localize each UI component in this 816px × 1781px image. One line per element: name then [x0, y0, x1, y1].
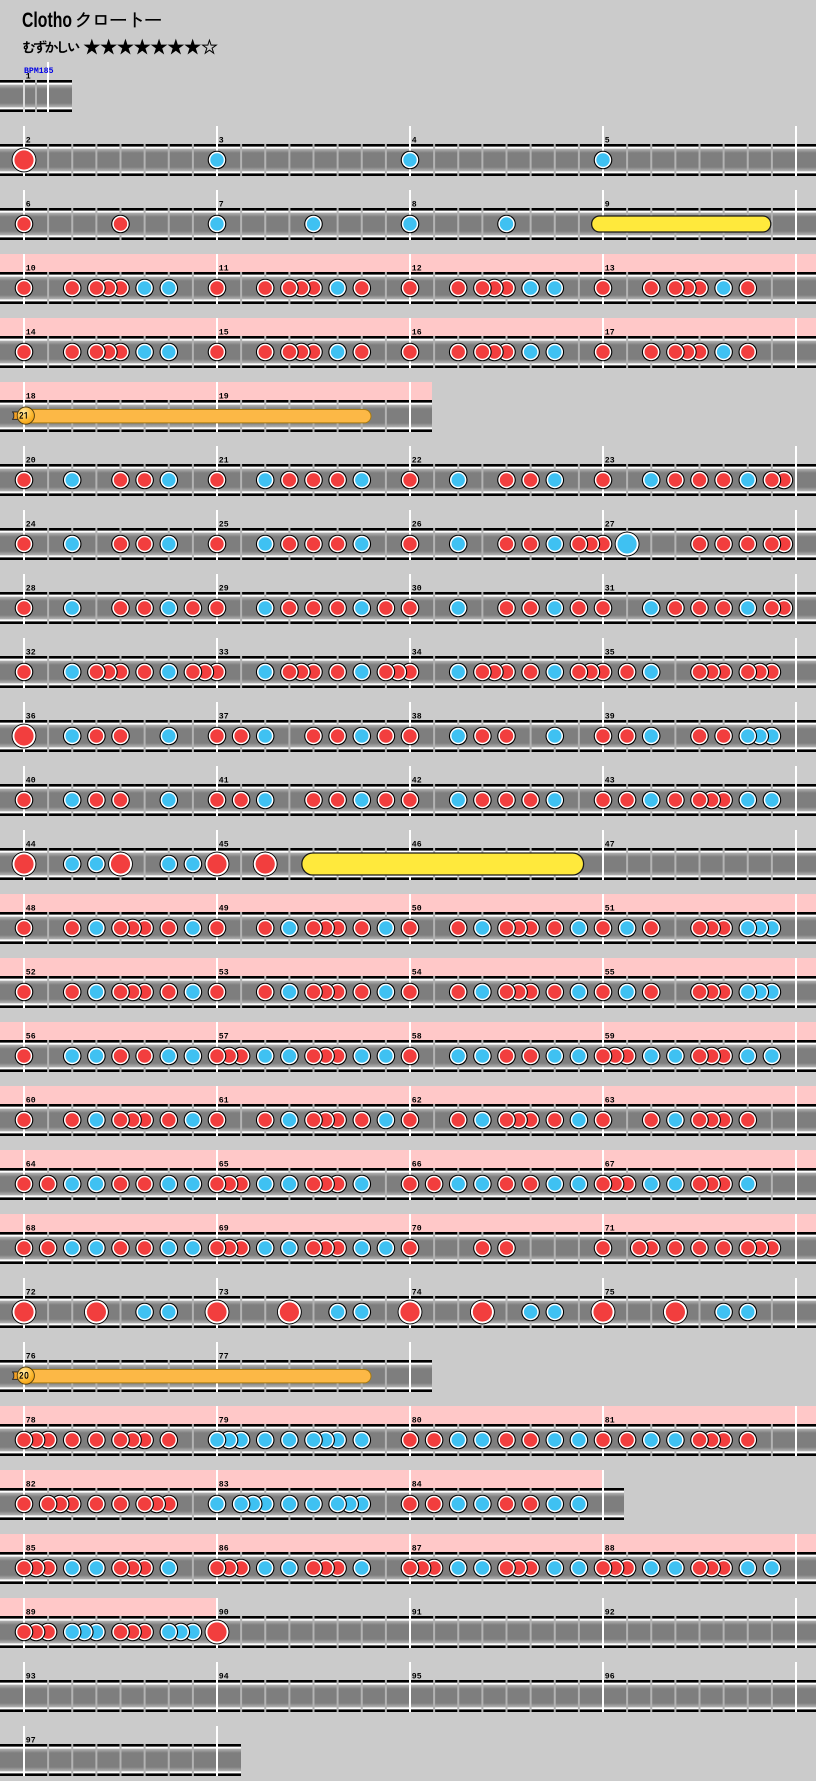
svg-text:29: 29	[219, 585, 229, 594]
svg-text:64: 64	[26, 1161, 36, 1170]
svg-text:11: 11	[219, 265, 229, 274]
svg-text:24: 24	[26, 521, 36, 530]
svg-text:34: 34	[412, 649, 422, 658]
svg-text:71: 71	[605, 1225, 615, 1234]
svg-text:97: 97	[26, 1737, 36, 1746]
svg-text:88: 88	[605, 1545, 615, 1554]
svg-text:20: 20	[26, 457, 36, 466]
svg-text:35: 35	[605, 649, 615, 658]
svg-text:51: 51	[605, 905, 615, 914]
svg-text:87: 87	[412, 1545, 422, 1554]
svg-text:74: 74	[412, 1289, 422, 1298]
svg-text:19: 19	[219, 393, 229, 402]
svg-text:13: 13	[605, 265, 615, 274]
svg-text:52: 52	[26, 969, 36, 978]
svg-text:27: 27	[605, 521, 615, 530]
svg-text:26: 26	[412, 521, 422, 530]
svg-text:50: 50	[412, 905, 422, 914]
svg-text:73: 73	[219, 1289, 229, 1298]
svg-text:Clotho: Clotho	[22, 9, 72, 32]
svg-text:86: 86	[219, 1545, 229, 1554]
svg-text:37: 37	[219, 713, 229, 722]
svg-text:96: 96	[605, 1673, 615, 1682]
svg-text:14: 14	[26, 329, 36, 338]
svg-text:2: 2	[26, 137, 31, 146]
svg-text:67: 67	[605, 1161, 615, 1170]
svg-text:90: 90	[219, 1609, 229, 1618]
svg-text:9: 9	[605, 201, 610, 210]
svg-text:6: 6	[26, 201, 31, 210]
svg-text:89: 89	[26, 1609, 36, 1618]
svg-text:75: 75	[605, 1289, 615, 1298]
svg-text:59: 59	[605, 1033, 615, 1042]
svg-text:10: 10	[26, 265, 36, 274]
svg-text:22: 22	[412, 457, 422, 466]
svg-text:49: 49	[219, 905, 229, 914]
svg-text:63: 63	[605, 1097, 615, 1106]
svg-text:82: 82	[26, 1481, 36, 1490]
svg-text:95: 95	[412, 1673, 422, 1682]
svg-text:42: 42	[412, 777, 422, 786]
svg-text:8: 8	[412, 201, 417, 210]
svg-text:58: 58	[412, 1033, 422, 1042]
svg-text:39: 39	[605, 713, 615, 722]
svg-text:41: 41	[219, 777, 229, 786]
svg-text:17: 17	[605, 329, 615, 338]
svg-text:91: 91	[412, 1609, 422, 1618]
svg-text:94: 94	[219, 1673, 229, 1682]
svg-text:68: 68	[26, 1225, 36, 1234]
svg-text:7: 7	[219, 201, 224, 210]
svg-text:33: 33	[219, 649, 229, 658]
svg-text:83: 83	[219, 1481, 229, 1490]
svg-text:65: 65	[219, 1161, 229, 1170]
svg-text:85: 85	[26, 1545, 36, 1554]
svg-text:15: 15	[219, 329, 229, 338]
svg-text:3: 3	[219, 137, 224, 146]
svg-text:23: 23	[605, 457, 615, 466]
svg-text:46: 46	[412, 841, 422, 850]
svg-text:25: 25	[219, 521, 229, 530]
svg-text:30: 30	[412, 585, 422, 594]
svg-text:77: 77	[219, 1353, 229, 1362]
svg-text:28: 28	[26, 585, 36, 594]
svg-text:31: 31	[605, 585, 615, 594]
svg-text:93: 93	[26, 1673, 36, 1682]
svg-text:BPM185: BPM185	[24, 67, 54, 76]
svg-text:36: 36	[26, 713, 36, 722]
svg-text:81: 81	[605, 1417, 615, 1426]
svg-text:12: 12	[412, 265, 422, 274]
svg-text:38: 38	[412, 713, 422, 722]
svg-text:55: 55	[605, 969, 615, 978]
svg-text:66: 66	[412, 1161, 422, 1170]
svg-text:4: 4	[412, 137, 417, 146]
svg-text:56: 56	[26, 1033, 36, 1042]
svg-text:54: 54	[412, 969, 422, 978]
svg-text:5: 5	[605, 137, 610, 146]
svg-text:21: 21	[219, 457, 229, 466]
svg-text:61: 61	[219, 1097, 229, 1106]
svg-text:57: 57	[219, 1033, 229, 1042]
svg-text:43: 43	[605, 777, 615, 786]
svg-text:76: 76	[26, 1353, 36, 1362]
svg-text:53: 53	[219, 969, 229, 978]
svg-text:79: 79	[219, 1417, 229, 1426]
svg-text:80: 80	[412, 1417, 422, 1426]
svg-text:48: 48	[26, 905, 36, 914]
svg-text:70: 70	[412, 1225, 422, 1234]
svg-text:44: 44	[26, 841, 36, 850]
svg-text:62: 62	[412, 1097, 422, 1106]
svg-text:84: 84	[412, 1481, 422, 1490]
svg-text:40: 40	[26, 777, 36, 786]
svg-text:78: 78	[26, 1417, 36, 1426]
svg-text:18: 18	[26, 393, 36, 402]
svg-text:45: 45	[219, 841, 229, 850]
svg-text:60: 60	[26, 1097, 36, 1106]
svg-text:47: 47	[605, 841, 615, 850]
svg-text:16: 16	[412, 329, 422, 338]
svg-text:32: 32	[26, 649, 36, 658]
svg-text:92: 92	[605, 1609, 615, 1618]
svg-text:69: 69	[219, 1225, 229, 1234]
svg-text:72: 72	[26, 1289, 36, 1298]
